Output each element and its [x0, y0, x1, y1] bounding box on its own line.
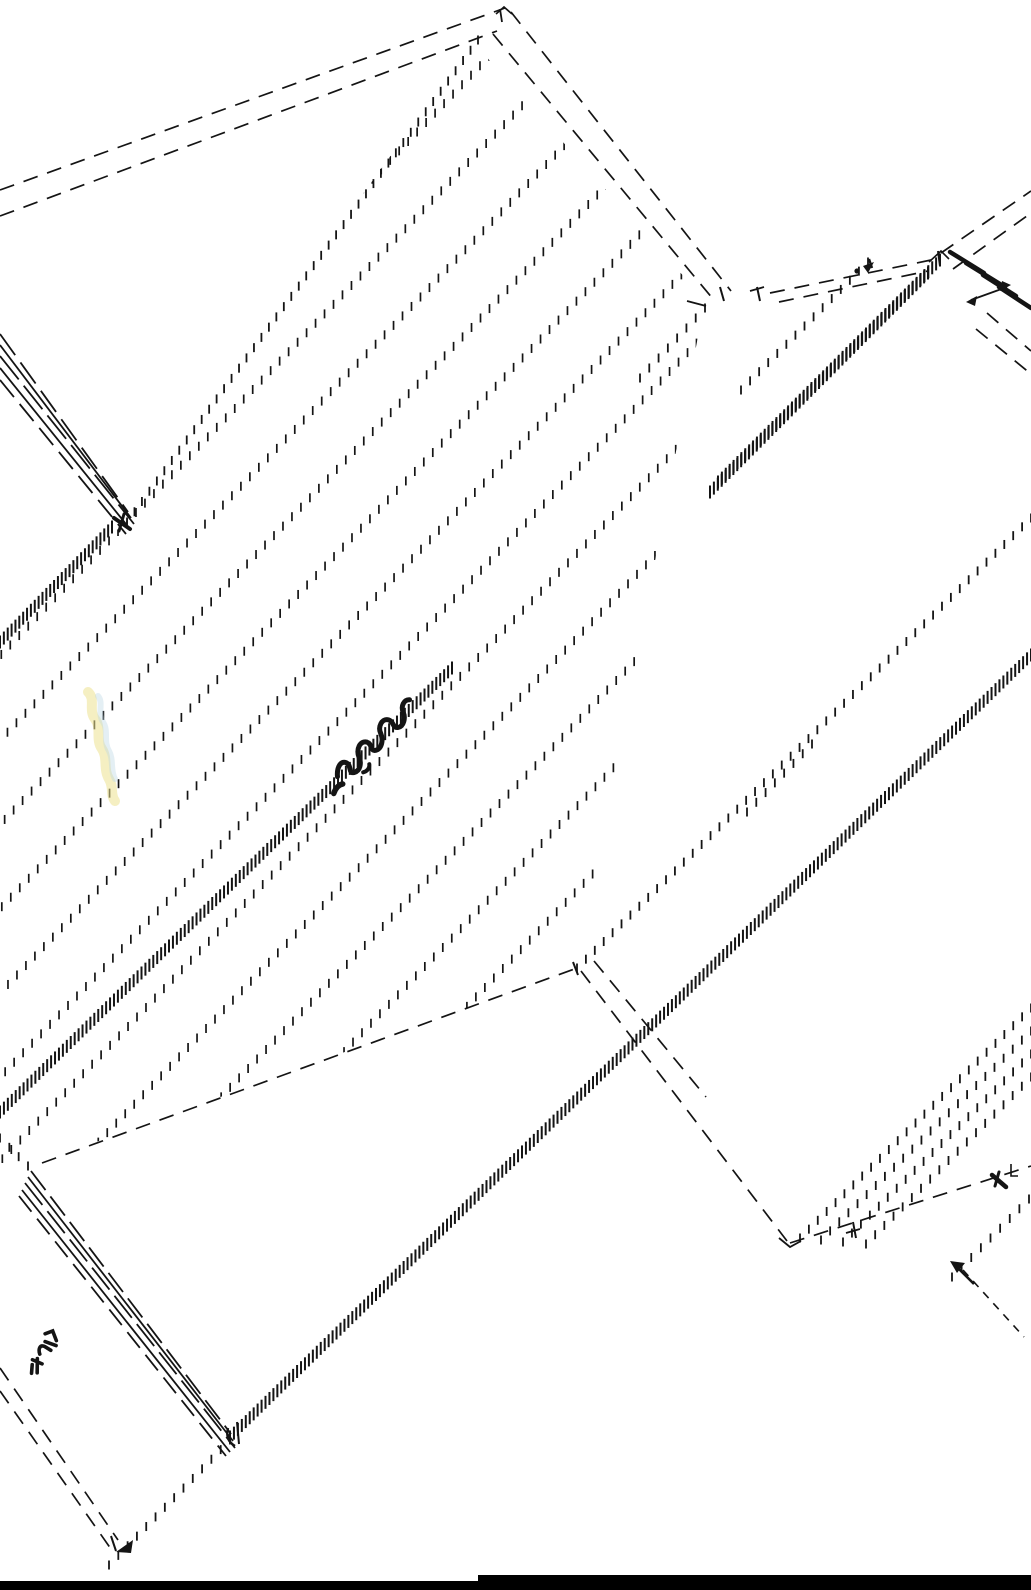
panel-thickness-edge-bands	[0, 334, 235, 1456]
scanned-drawing-sheet	[0, 0, 1031, 1590]
band-end-arrow-mark	[116, 1540, 133, 1553]
arrowhead-left-icon	[966, 296, 977, 306]
bottom-right-pen-markup	[950, 1164, 1018, 1284]
handwritten-note-bottom-left	[20, 1328, 64, 1375]
top-right-pen-markup	[950, 252, 1031, 308]
mid-top-arrow-mark	[854, 259, 874, 274]
isometric-line-drawing	[0, 0, 1031, 1590]
dense-tick-edge-lines	[0, 254, 1031, 1444]
footer-scan-bar-thick	[478, 1575, 1031, 1590]
hidden-edge-dashed-lines	[0, 8, 1031, 1549]
corner-bracket-marks	[111, 7, 949, 1551]
central-panel-hatching	[0, 0, 1031, 1590]
faint-marker-scribble	[88, 692, 115, 801]
